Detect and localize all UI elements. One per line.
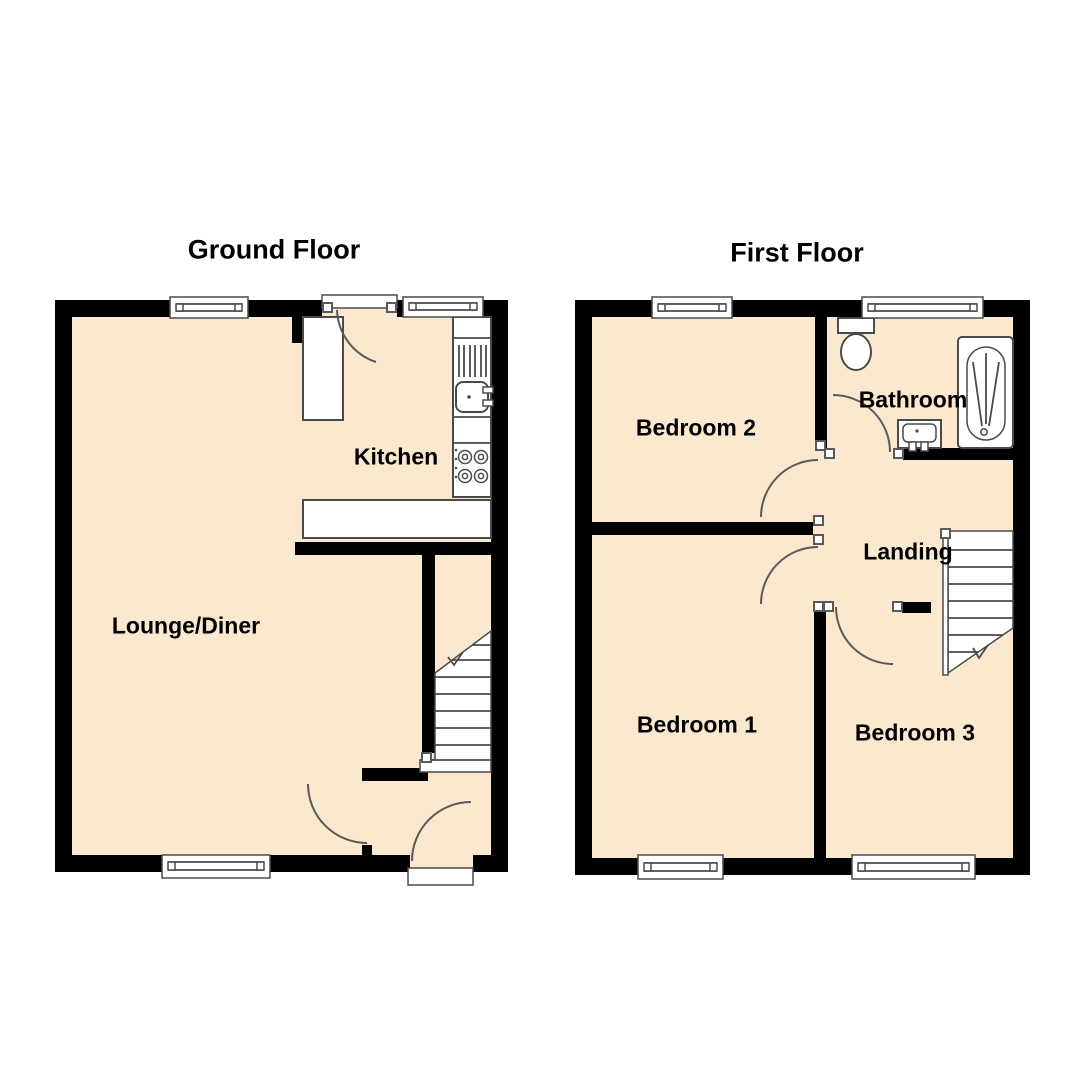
room-label-bedroom2: Bedroom 2 bbox=[636, 415, 756, 442]
first-window-bathroom bbox=[862, 297, 983, 318]
first-window-bedroom1 bbox=[638, 855, 723, 879]
ground-window-bottom bbox=[162, 855, 270, 878]
kitchen-counter-bottom bbox=[303, 500, 491, 538]
first-floor-title: First Floor bbox=[730, 238, 864, 269]
floorplan-canvas: Ground Floor First Floor Kitchen Lounge/… bbox=[0, 0, 1080, 1080]
first-window-bedroom3 bbox=[852, 855, 975, 879]
ground-floor-plan bbox=[55, 295, 508, 885]
kitchen-sink bbox=[456, 382, 493, 412]
room-label-bedroom3: Bedroom 3 bbox=[855, 720, 975, 747]
room-label-lounge-diner: Lounge/Diner bbox=[112, 613, 260, 640]
ground-window-top-right bbox=[403, 297, 483, 317]
ground-floor-title: Ground Floor bbox=[188, 235, 360, 266]
room-label-landing: Landing bbox=[863, 539, 952, 566]
toilet bbox=[838, 318, 874, 370]
room-label-bedroom1: Bedroom 1 bbox=[637, 712, 757, 739]
first-window-bedroom2 bbox=[652, 297, 732, 318]
room-label-kitchen: Kitchen bbox=[354, 444, 438, 471]
ground-floor-area bbox=[55, 300, 508, 872]
ground-window-top-left bbox=[170, 297, 248, 318]
bathroom-sink bbox=[898, 420, 941, 451]
kitchen-tall-cupboard bbox=[303, 317, 343, 420]
first-floor-plan bbox=[575, 297, 1030, 879]
room-label-bathroom: Bathroom bbox=[859, 387, 968, 414]
